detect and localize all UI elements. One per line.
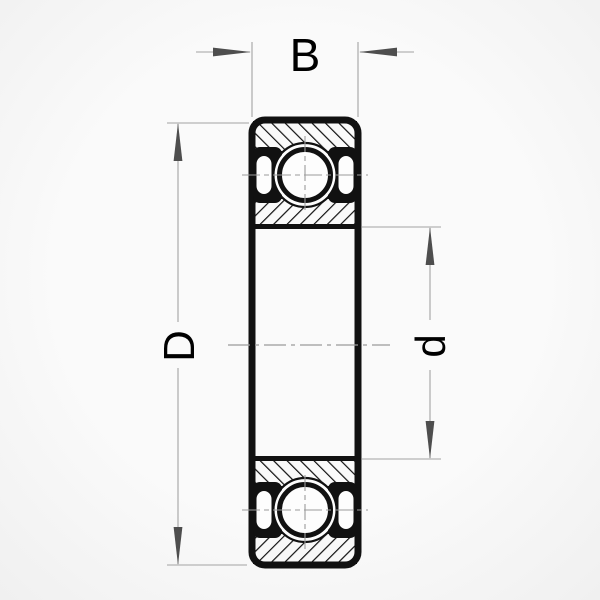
b-arrow-left-icon — [213, 48, 251, 57]
bearing-section-bottom — [242, 459, 368, 564]
outer-diameter-label: D — [155, 330, 204, 362]
bore-diameter-label: d — [407, 334, 454, 357]
d-bore-arrow-top-icon — [426, 227, 435, 265]
bearing-section-top — [242, 122, 368, 227]
dimension-width-B: B — [196, 29, 414, 117]
width-label: B — [290, 29, 321, 81]
d-bore-arrow-bottom-icon — [426, 421, 435, 459]
d-outer-arrow-bottom-icon — [174, 527, 183, 565]
bearing-diagram: B D d — [0, 0, 600, 600]
d-outer-arrow-top-icon — [174, 123, 183, 161]
b-arrow-right-icon — [359, 48, 397, 57]
bearing-drawing-page: B D d — [0, 0, 600, 600]
dimension-outer-diameter-D: D — [155, 123, 249, 565]
dimension-bore-diameter-d: d — [362, 227, 454, 459]
